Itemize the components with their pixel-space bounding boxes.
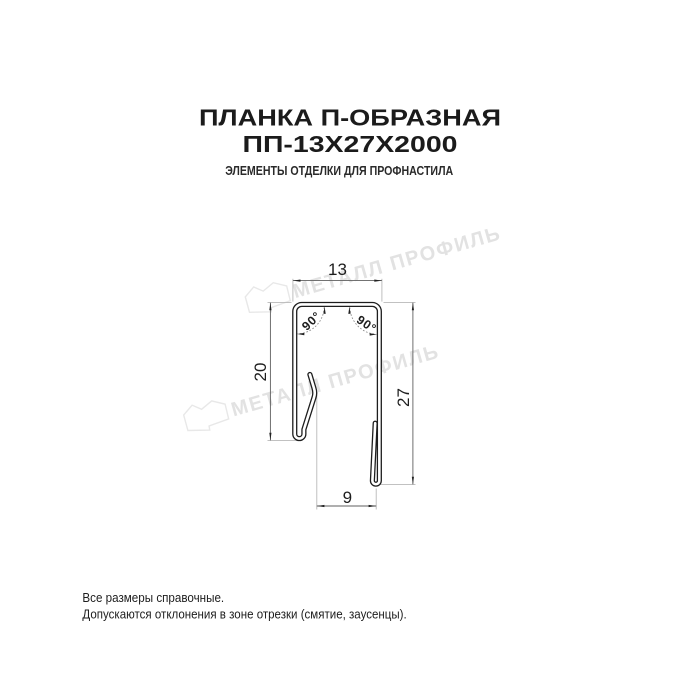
svg-text:27: 27 bbox=[394, 388, 413, 407]
svg-text:ПП-13Х27Х2000: ПП-13Х27Х2000 bbox=[243, 131, 458, 157]
svg-text:90°: 90° bbox=[354, 313, 379, 336]
svg-text:ПЛАНКА П-ОБРАЗНАЯ: ПЛАНКА П-ОБРАЗНАЯ bbox=[199, 104, 501, 130]
svg-text:9: 9 bbox=[343, 488, 352, 507]
svg-text:МЕТАЛЛ ПРОФИЛЬ: МЕТАЛЛ ПРОФИЛЬ bbox=[290, 223, 502, 303]
svg-text:90°: 90° bbox=[299, 309, 324, 334]
svg-text:ЭЛЕМЕНТЫ ОТДЕЛКИ ДЛЯ ПРОФНАСТИ: ЭЛЕМЕНТЫ ОТДЕЛКИ ДЛЯ ПРОФНАСТИЛА bbox=[225, 163, 453, 178]
svg-text:Допускаются отклонения в зоне: Допускаются отклонения в зоне отрезки (с… bbox=[82, 607, 406, 622]
svg-text:Все размеры справочные.: Все размеры справочные. bbox=[82, 590, 224, 605]
svg-text:13: 13 bbox=[328, 260, 347, 279]
svg-text:20: 20 bbox=[251, 363, 270, 382]
